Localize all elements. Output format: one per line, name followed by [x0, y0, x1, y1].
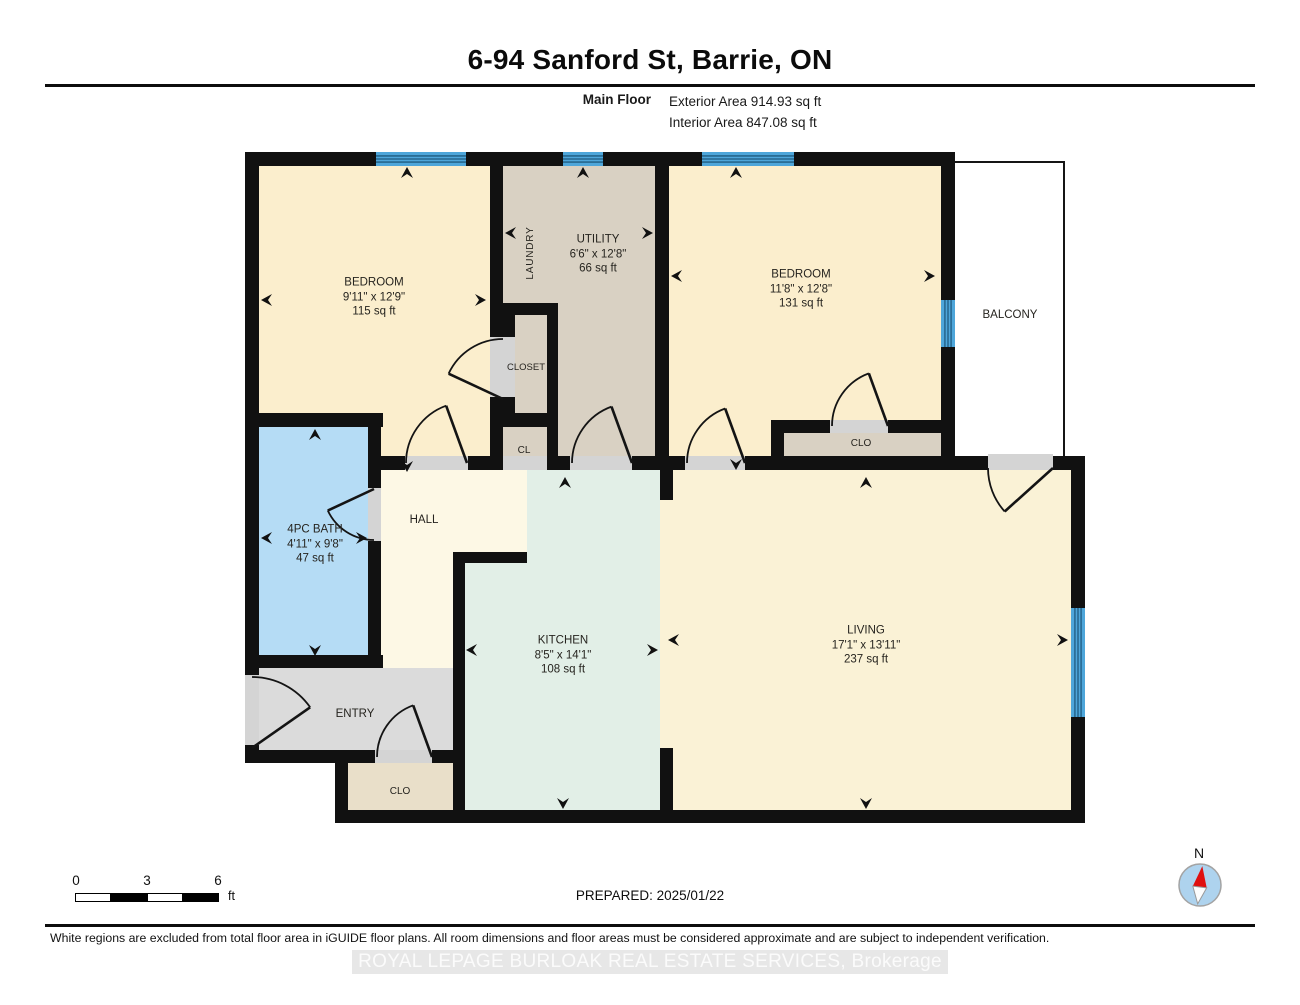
room-kitchen-fill	[527, 470, 660, 563]
door-opening	[405, 456, 468, 470]
dimension-arrow	[730, 459, 742, 470]
wall	[335, 750, 348, 823]
window	[563, 152, 603, 166]
room-label-bath: 4PC BATH4'11" x 9'8"47 sq ft	[287, 522, 343, 566]
room-label-closet: CLOSET	[507, 361, 545, 376]
brokerage-watermark: ROYAL LEPAGE BURLOAK REAL ESTATE SERVICE…	[0, 950, 1300, 974]
wall	[432, 750, 457, 763]
wall	[245, 745, 259, 763]
wall	[335, 810, 1085, 823]
door-opening	[245, 675, 259, 745]
room-label-balcony: BALCONY	[983, 308, 1038, 323]
room-hall-fill	[381, 552, 453, 668]
wall	[490, 166, 503, 337]
door-opening	[570, 456, 632, 470]
room-label-hall: HALL	[410, 513, 439, 528]
door-opening	[368, 488, 381, 541]
door-opening	[685, 456, 745, 470]
room-label-entry: ENTRY	[336, 707, 375, 722]
room-laundry-utility-fill	[503, 166, 655, 456]
room-label-kitchen: KITCHEN8'5" x 14'1"108 sq ft	[535, 633, 592, 677]
room-hall-fill	[381, 470, 527, 552]
room-bedroom2-fill	[668, 166, 941, 456]
room-label-bedroom1: BEDROOM9'11" x 12'9"115 sq ft	[343, 275, 405, 319]
door-opening	[503, 456, 547, 470]
wall	[1071, 456, 1085, 608]
room-label-cl: CL	[518, 445, 531, 457]
disclaimer-text: White regions are excluded from total fl…	[50, 931, 1049, 945]
wall	[453, 552, 527, 563]
interior-area: Interior Area 847.08 sq ft	[669, 112, 821, 133]
door-opening	[375, 750, 432, 763]
wall	[490, 397, 503, 470]
window	[376, 152, 466, 166]
room-label-utility: UTILITY6'6" x 12'8"66 sq ft	[570, 232, 627, 276]
room-kitchen-fill	[465, 563, 660, 810]
wall	[245, 750, 375, 763]
wall	[655, 166, 669, 470]
window	[702, 152, 794, 166]
room-label-bedroom2: BEDROOM11'8" x 12'8"131 sq ft	[770, 267, 832, 311]
room-label-laundry: LAUNDRY	[525, 226, 537, 279]
exterior-area: Exterior Area 914.93 sq ft	[669, 91, 821, 112]
wall	[1071, 717, 1085, 823]
wall	[368, 541, 381, 668]
floorplan-page: 6-94 Sanford St, Barrie, ON Main Floor E…	[0, 0, 1300, 1005]
page-title: 6-94 Sanford St, Barrie, ON	[0, 44, 1300, 76]
floor-label: Main Floor	[583, 91, 651, 133]
wall	[632, 456, 685, 470]
prepared-date: PREPARED: 2025/01/22	[0, 888, 1300, 903]
compass-icon	[1172, 858, 1228, 914]
floor-info: Main Floor Exterior Area 914.93 sq ft In…	[0, 91, 1300, 133]
wall	[245, 152, 955, 166]
room-label-clo-entry: CLO	[390, 786, 411, 798]
wall	[245, 655, 383, 668]
header-divider	[45, 84, 1255, 87]
room-label-living: LIVING17'1" x 13'11"237 sq ft	[832, 623, 901, 667]
window	[1071, 608, 1085, 717]
footer-divider	[45, 924, 1255, 927]
room-label-clo-bedroom2: CLO	[851, 438, 872, 450]
wall	[368, 456, 405, 470]
wall	[558, 456, 570, 470]
wall	[245, 152, 259, 675]
wall	[453, 552, 465, 810]
wall	[468, 456, 490, 470]
